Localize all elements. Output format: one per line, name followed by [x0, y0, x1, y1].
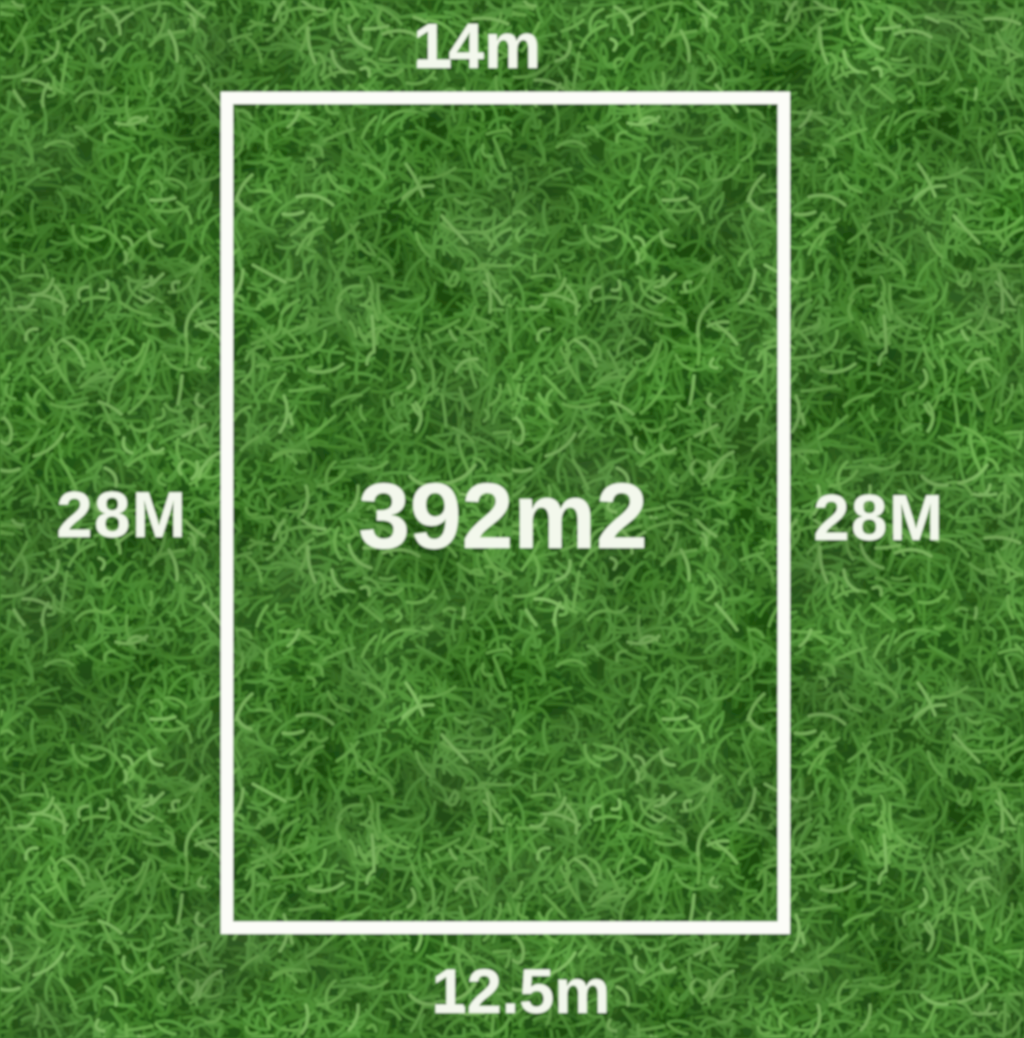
svg-text:392m2: 392m2 [358, 464, 648, 568]
svg-text:12.5m: 12.5m [432, 957, 611, 1027]
svg-text:28M: 28M [56, 478, 187, 551]
svg-text:28M: 28M [813, 481, 944, 554]
svg-text:14m: 14m [413, 10, 541, 82]
